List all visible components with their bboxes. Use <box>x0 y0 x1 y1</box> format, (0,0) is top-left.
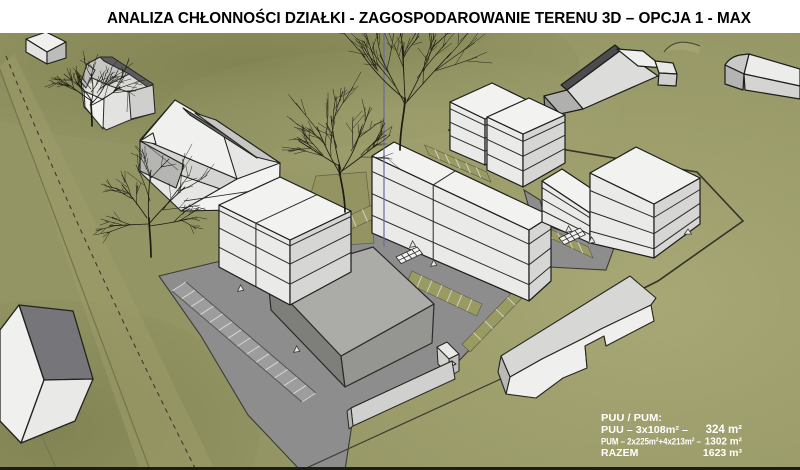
svg-text:PUU – 3x108m² –: PUU – 3x108m² – <box>601 424 688 436</box>
svg-text:324 m²: 324 m² <box>706 424 743 436</box>
svg-text:1623 m³: 1623 m³ <box>703 447 743 459</box>
svg-text:1302 m²: 1302 m² <box>705 436 743 447</box>
svg-text:ANALIZA CHŁONNOŚCI DZIAŁKI - Z: ANALIZA CHŁONNOŚCI DZIAŁKI - ZAGOSPODARO… <box>107 9 752 27</box>
svg-text:PUU / PUM:: PUU / PUM: <box>601 412 662 424</box>
svg-text:RAZEM: RAZEM <box>601 447 639 459</box>
svg-text:PUM – 2x225m²+4x213m² –: PUM – 2x225m²+4x213m² – <box>601 436 701 446</box>
